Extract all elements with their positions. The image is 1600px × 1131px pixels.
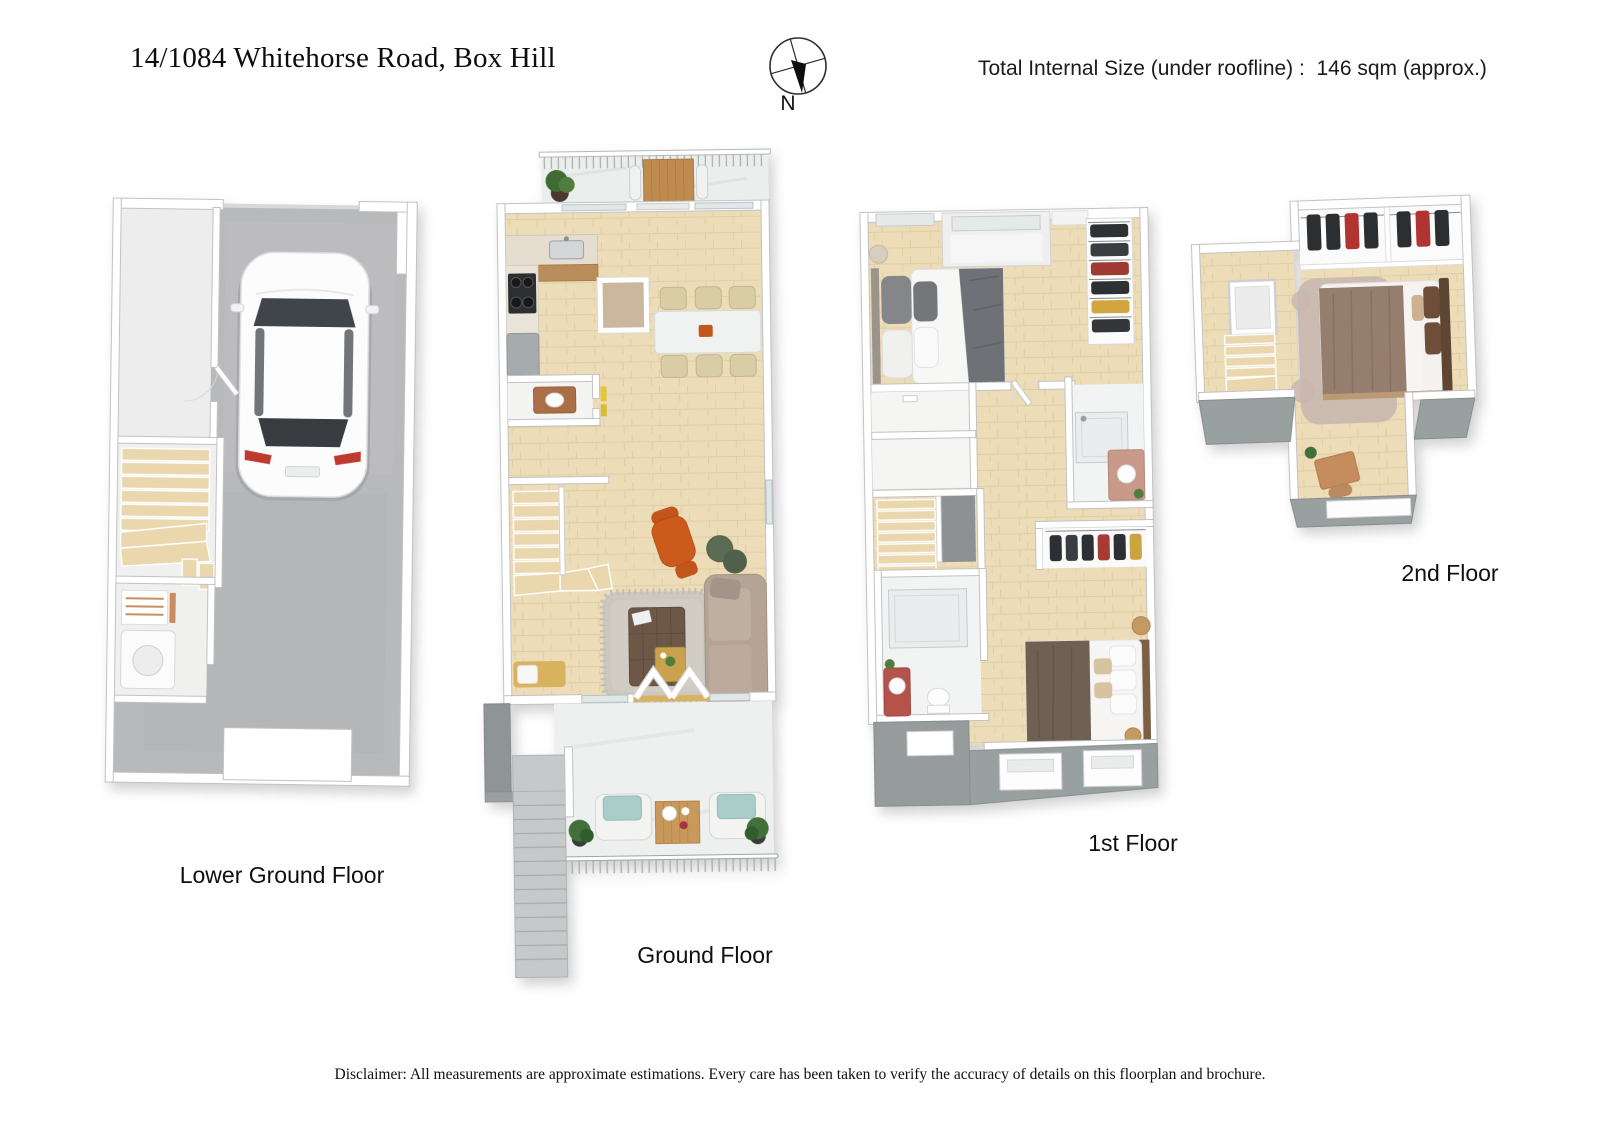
total-size-note: Total Internal Size (under roofline) : 1… [978,57,1487,81]
shower [888,589,967,648]
bedside-table [869,245,887,263]
bathroom-2 [874,568,989,722]
window [710,693,752,701]
label-second-floor: 2nd Floor [1330,560,1570,587]
dining-set [654,286,761,377]
storage-nook [223,728,352,782]
window [582,695,628,703]
disclaimer-text: Disclaimer: All measurements are approxi… [0,1066,1600,1084]
car-windshield [254,298,356,327]
terrace-armchair [595,794,652,841]
car-rear-window [258,418,348,447]
car [228,252,379,502]
compass-icon [752,26,844,96]
bed-blanket [1025,641,1091,746]
towel [600,386,606,401]
balcony-slider [695,202,753,209]
second-floor-plan [1168,185,1493,564]
laundry-area [120,590,175,689]
first-floor-plan [840,187,1177,825]
label-ground-floor: Ground Floor [580,942,830,969]
toilet [927,688,949,706]
window [876,213,934,226]
wardrobe [1298,204,1463,270]
floorplan-page: 14/1084 Whitehorse Road, Box Hill Total … [0,0,1600,1131]
stair-void [941,496,976,563]
terrace-railing [554,854,778,874]
side-wall [484,704,511,800]
label-lower-ground-floor: Lower Ground Floor [147,862,417,889]
compass-north-label: N [766,92,810,116]
terrace [552,701,778,874]
bedside-table [1132,617,1150,635]
walk-in-robe [1035,519,1154,569]
sofa [704,574,768,707]
kitchen-window [562,204,626,211]
sink [549,241,583,259]
ground-floor-plan [446,144,810,991]
lower-ground-floor-plan [53,189,452,826]
external-stairs [513,747,576,978]
powder-room [507,374,607,426]
terrace-coffee-table [655,801,700,844]
fridge [507,333,540,379]
window [1326,498,1411,518]
window-bay [942,211,1051,267]
ensuite-bathroom [1065,375,1153,508]
island-mat [600,280,647,331]
label-first-floor: 1st Floor [1008,830,1258,857]
stairs [1223,280,1279,397]
page-title: 14/1084 Whitehorse Road, Box Hill [130,42,556,75]
